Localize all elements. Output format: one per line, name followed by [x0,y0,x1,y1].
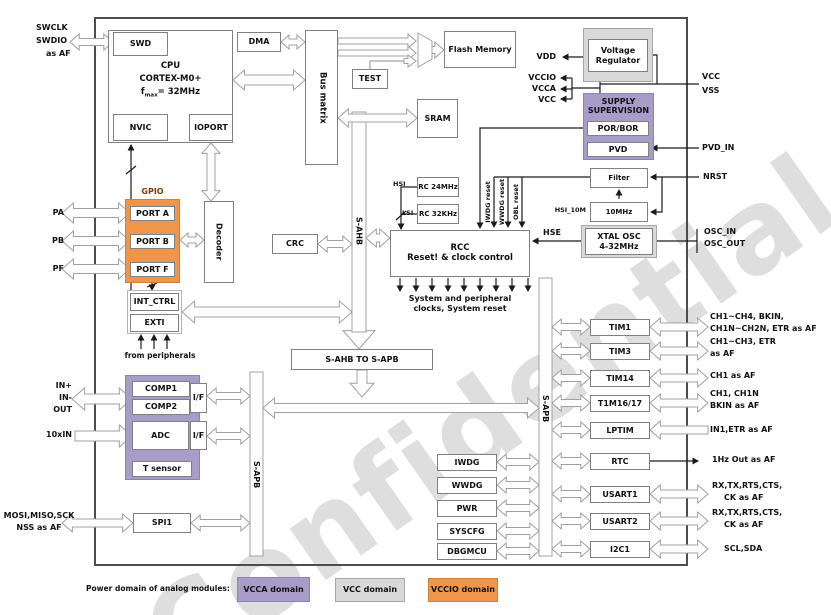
cpu-core: CORTEX-M0+ [139,74,201,84]
in-plus-label: IN+ [40,381,72,391]
sahb-bus-label: S-AHB [351,200,367,262]
iwdg-reset-label: IWDG reset [484,174,494,230]
legend-vcc-domain: VCC domain [335,578,405,602]
10mhz-block: 10MHz [590,202,648,222]
supply-line2: SUPERVISION [588,106,649,115]
nvic-block: NVIC [113,114,168,141]
bus-matrix-block: Bus matrix [305,30,338,165]
out-label: OUT [40,405,72,415]
pwr-block: PWR [437,500,497,517]
dma-block: DMA [237,32,281,52]
lsi-label: LSI [402,210,413,218]
cpu-fmax-sub: max [145,92,158,98]
t-sensor-block: T sensor [132,461,192,477]
tim3-io-line1: CH1~CH3, ETR [710,337,776,347]
in-minus-label: IN- [40,393,72,403]
ahb-apb-bridge-block: S-AHB TO S-APB [291,349,433,370]
mcu-block-diagram: Confidential SWCLK SWDIO as AF SWD CPU C… [0,0,831,615]
legend-vccio-domain: VCCIO domain [428,578,498,602]
nss-label: NSS as AF [0,523,78,533]
vcc-pin-label: VCC [702,72,720,82]
cpu-fmax-value: = 32MHz [158,87,200,97]
supply-line1: SUPPLY [602,97,636,106]
port-b-block: PORT B [130,234,175,249]
from-peripherals-label: from peripherals [120,351,200,360]
tim14-io-line1: CH1 as AF [710,371,756,381]
usart1-block: USART1 [590,486,650,503]
rc24mhz-block: RC 24MHz [417,177,459,197]
flash-mux-shape [418,33,432,67]
voltage-regulator-block: Voltage Regulator [588,39,648,72]
i2c1-block: I2C1 [590,541,650,558]
sapb-left-bus-label: S-APB [249,444,264,506]
test-block: TEST [352,69,388,89]
flash-memory-block: Flash Memory [444,31,516,68]
ioport-block: IOPORT [189,114,233,141]
wwdg-reset-label: WWDG reset [498,174,508,230]
rtc-io-line1: 1Hz Out as AF [712,455,775,465]
por-bor-block: POR/BOR [587,121,649,136]
vdd-label: VDD [520,52,556,62]
system-clocks-line1: System and peripheral [409,294,512,303]
comp2-block: COMP2 [132,399,190,415]
usart1-io-line1: RX,TX,RTS,CTS, [712,481,782,491]
iwdg-block: IWDG [437,454,497,471]
int-ctrl-block: INT_CTRL [130,293,179,311]
swdio-asaf-label: as AF [46,49,71,59]
vcca-label: VCCA [518,84,556,94]
sram-block: SRAM [417,99,458,138]
filter-block: Filter [590,168,648,188]
spi1-block: SPI1 [133,513,191,533]
pvd-in-label: PVD_IN [702,143,734,153]
tim1-io-line2: CH1N~CH2N, ETR as AF [710,324,817,334]
gpio-title: GPIO [125,187,180,197]
xtal-osc-block: XTAL OSC 4-32MHz [585,228,653,255]
hse-label: HSE [543,228,561,238]
crc-block: CRC [272,234,318,254]
vreg-line1: Voltage [601,46,635,55]
rcc-line2: Reset! & clock control [407,254,513,264]
vcc-label: VCC [518,95,556,105]
nrst-label: NRST [703,172,727,182]
legend-vcca-domain: VCCA domain [237,577,310,602]
port-a-block: PORT A [130,206,175,221]
10xin-label: 10xIN [36,430,72,440]
cpu-name: CPU [161,61,180,71]
rc32khz-block: RC 32KHz [417,204,459,224]
adc-block: ADC [132,421,189,450]
swdio-label: SWDIO [36,36,67,46]
swd-block: SWD [113,32,168,56]
tim3-io-line2: as AF [710,349,735,359]
swclk-label: SWCLK [36,23,68,33]
adc-if-block: I/F [190,421,207,450]
vccio-label: VCCIO [518,73,556,83]
sapb-right-bus-label: S-APB [538,378,553,440]
comp-if-block: I/F [190,383,207,413]
legend-title: Power domain of analog modules: [86,584,230,593]
tim16-io-line1: CH1, CH1N [710,389,759,399]
tim3-block: TIM3 [590,343,650,360]
hsi10m-label: HSI_10M [548,207,586,215]
pa-label: PA [40,208,64,218]
usart2-block: USART2 [590,513,650,530]
usart1-io-line2: CK as AF [724,493,763,503]
i2c1-io-line1: SCL,SDA [724,544,762,554]
tim16-io-line2: BKIN as AF [710,401,759,411]
rcc-block: RCC Reset! & clock control [390,230,530,277]
lptim-io-line1: IN1,ETR as AF [710,425,773,435]
decoder-block: Decoder [204,201,234,283]
xtal-line2: 4-32MHz [599,242,638,251]
vreg-line2: Regulator [596,56,640,65]
pf-label: PF [40,264,64,274]
usart2-io-line1: RX,TX,RTS,CTS, [712,508,782,518]
lptim-block: LPTIM [590,422,650,439]
system-clocks-line2: clocks, System reset [413,304,506,313]
exti-block: EXTI [130,314,179,332]
pb-label: PB [40,236,64,246]
tim1-block: TIM1 [590,319,650,336]
osc-in-label: OSC_IN [704,227,736,237]
tim1-io-line1: CH1~CH4, BKIN, [710,312,784,322]
tim16-17-block: T1M16/17 [590,395,650,412]
usart2-io-line2: CK as AF [724,520,763,530]
vss-pin-label: VSS [702,86,719,96]
syscfg-block: SYSCFG [437,523,497,540]
mosi-label: MOSI,MISO,SCK [0,511,78,521]
xtal-line1: XTAL OSC [597,232,641,241]
tim14-block: TIM14 [590,370,650,387]
osc-out-label: OSC_OUT [704,239,745,249]
port-f-block: PORT F [130,262,175,277]
comp1-block: COMP1 [132,381,190,397]
obl-reset-label: OBL reset [512,174,522,230]
rtc-block: RTC [590,453,650,470]
hsi-label: HSI [393,181,406,189]
wwdg-block: WWDG [437,477,497,494]
pvd-block: PVD [587,142,649,157]
dbgmcu-block: DBGMCU [437,543,497,560]
system-clocks-label: System and peripheral clocks, System res… [390,294,530,313]
cpu-title: CPU CORTEX-M0+ fmax= 32MHz [108,60,233,99]
